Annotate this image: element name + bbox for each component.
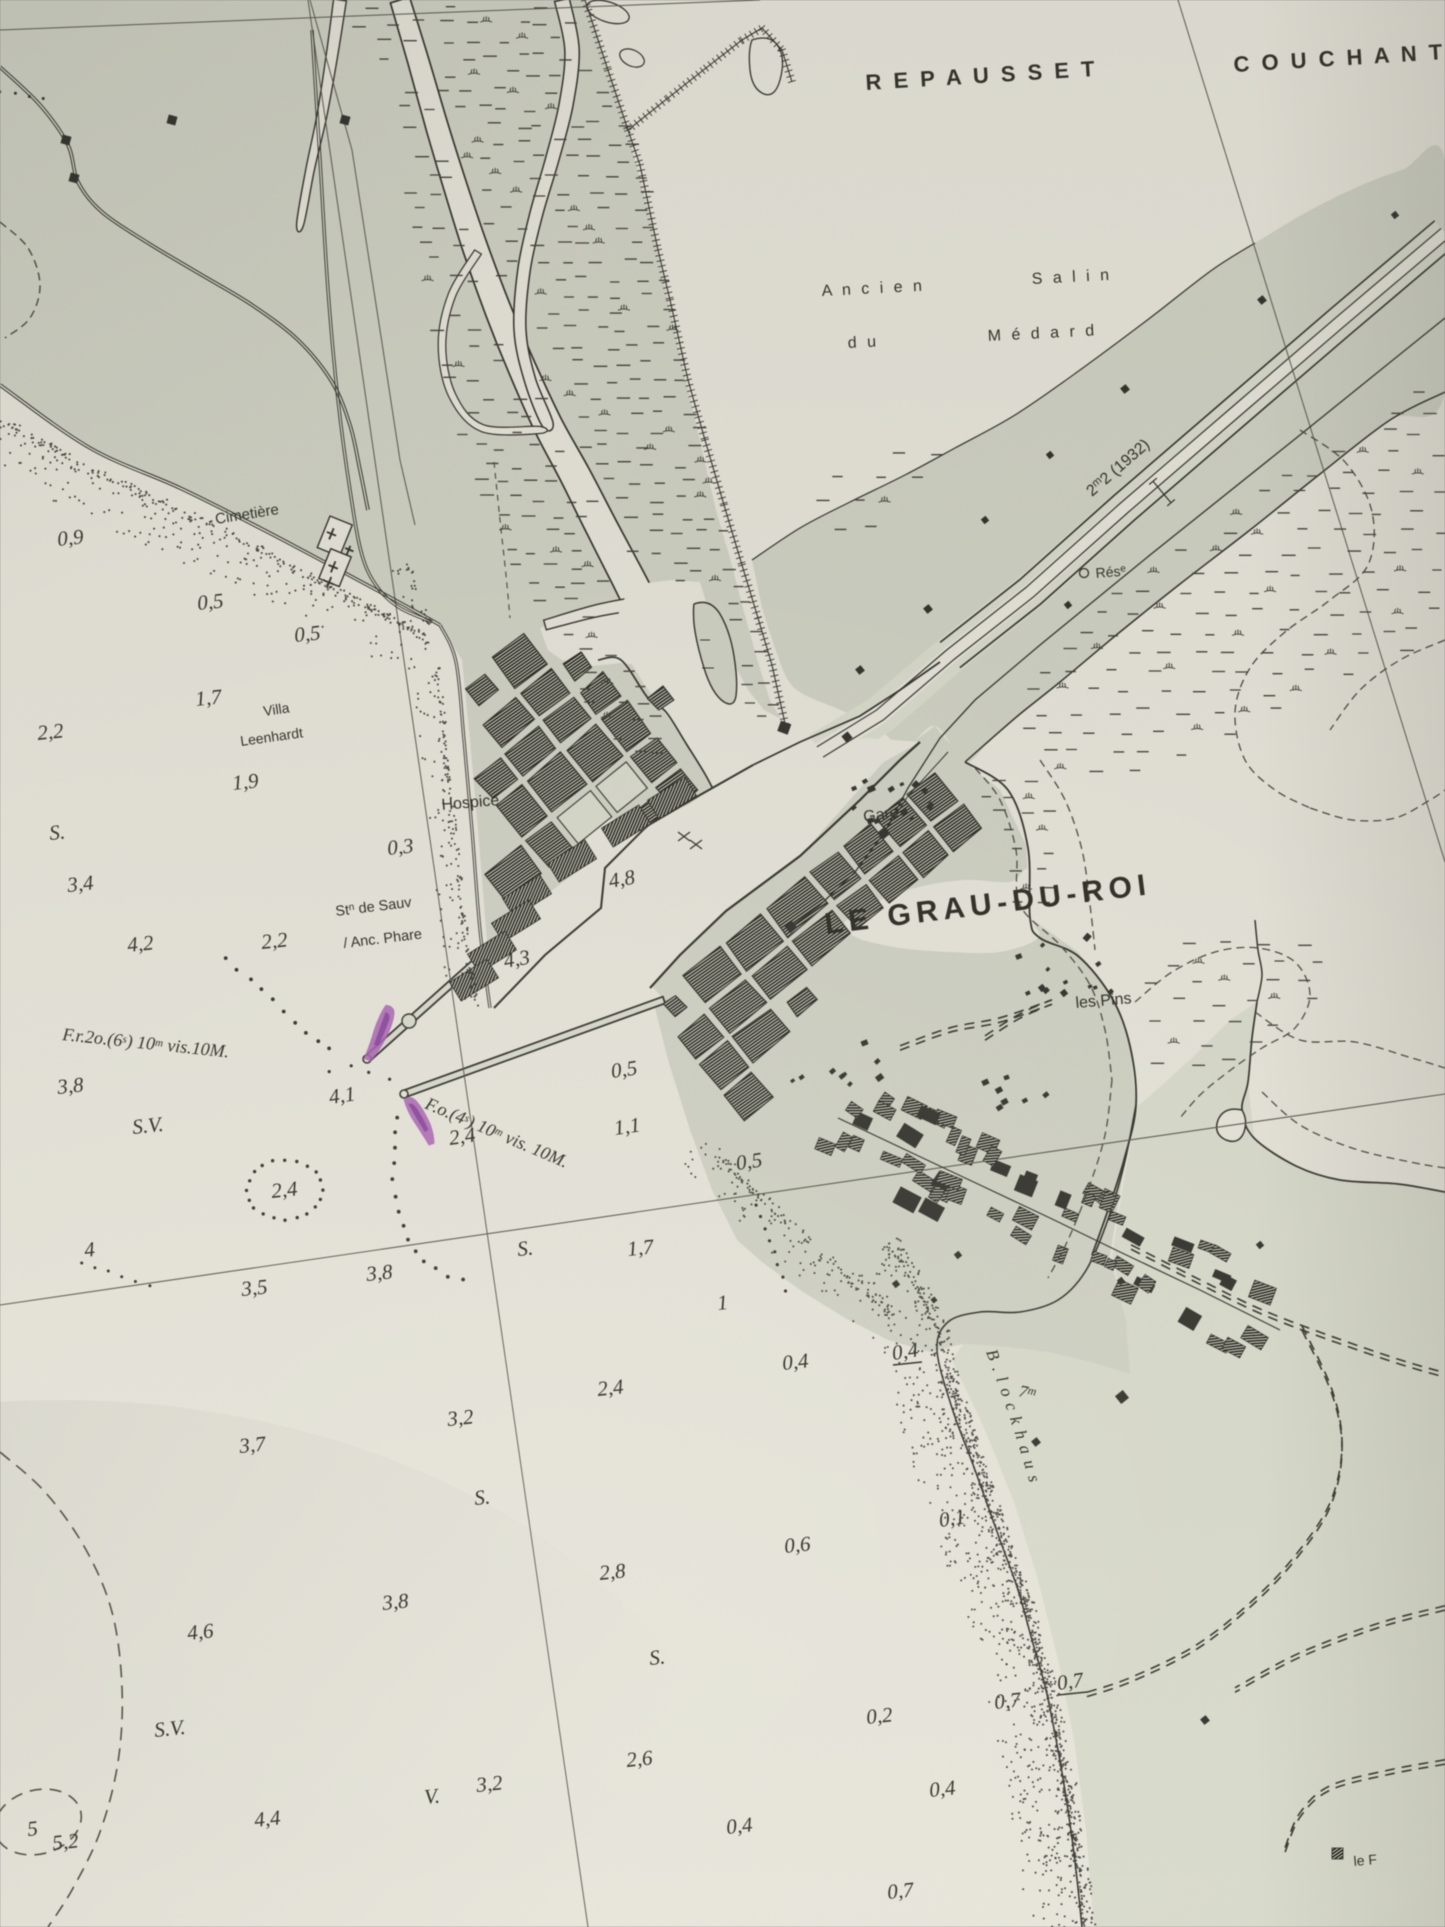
svg-text:4,8: 4,8 — [607, 865, 638, 893]
svg-text:2,2: 2,2 — [36, 718, 65, 745]
svg-text:0,4: 0,4 — [725, 1812, 754, 1839]
svg-text:0,7: 0,7 — [1055, 1667, 1086, 1695]
svg-text:0,4: 0,4 — [781, 1348, 810, 1375]
svg-text:0,7: 0,7 — [993, 1687, 1023, 1714]
svg-text:2,4: 2,4 — [447, 1122, 477, 1149]
svg-text:0,1: 0,1 — [937, 1505, 966, 1532]
svg-text:S.: S. — [516, 1235, 534, 1261]
svg-text:2,4: 2,4 — [270, 1176, 299, 1203]
svg-text:0,4: 0,4 — [890, 1337, 920, 1364]
svg-text:1,9: 1,9 — [231, 768, 260, 795]
svg-text:0,3: 0,3 — [386, 833, 415, 860]
svg-text:3,8: 3,8 — [55, 1072, 85, 1099]
svg-text:0,4: 0,4 — [928, 1775, 957, 1802]
svg-text:S.V.: S.V. — [153, 1715, 186, 1742]
svg-text:2,8: 2,8 — [598, 1558, 627, 1585]
svg-text:0,5: 0,5 — [293, 620, 322, 647]
svg-text:4,4: 4,4 — [253, 1805, 282, 1832]
svg-text:S.: S. — [648, 1644, 666, 1670]
svg-text:0,9: 0,9 — [56, 524, 85, 551]
svg-text:3,4: 3,4 — [65, 870, 95, 897]
svg-text:V.: V. — [423, 1783, 441, 1808]
svg-text:0,7: 0,7 — [886, 1877, 916, 1904]
svg-text:3,8: 3,8 — [364, 1259, 394, 1286]
svg-text:3,7: 3,7 — [237, 1431, 268, 1458]
svg-text:S.: S. — [48, 819, 66, 845]
svg-text:1,7: 1,7 — [194, 684, 224, 711]
svg-text:4,1: 4,1 — [327, 1082, 356, 1109]
svg-text:1,7: 1,7 — [626, 1234, 656, 1261]
svg-text:0,5: 0,5 — [196, 588, 225, 615]
svg-text:3,2: 3,2 — [474, 1770, 504, 1797]
svg-text:S.: S. — [473, 1484, 491, 1510]
svg-text:0,5: 0,5 — [734, 1148, 763, 1175]
svg-text:2,4: 2,4 — [596, 1374, 625, 1401]
svg-text:3,2: 3,2 — [445, 1404, 475, 1431]
svg-text:4,6: 4,6 — [186, 1618, 215, 1645]
svg-text:3,5: 3,5 — [239, 1274, 269, 1301]
svg-text:2,2: 2,2 — [260, 927, 289, 954]
svg-text:5,2: 5,2 — [51, 1828, 80, 1855]
svg-text:le F: le F — [1353, 1851, 1378, 1869]
svg-text:0,6: 0,6 — [783, 1531, 812, 1558]
svg-text:4,3: 4,3 — [502, 945, 532, 973]
svg-text:1,1: 1,1 — [612, 1113, 641, 1140]
svg-text:3,8: 3,8 — [380, 1588, 410, 1615]
svg-text:0,5: 0,5 — [609, 1056, 638, 1083]
svg-text:0,2: 0,2 — [865, 1702, 894, 1729]
svg-text:2,6: 2,6 — [625, 1745, 654, 1772]
svg-text:d u: d u — [847, 333, 879, 352]
svg-text:4,2: 4,2 — [126, 930, 155, 957]
svg-text:S.V.: S.V. — [131, 1112, 164, 1139]
